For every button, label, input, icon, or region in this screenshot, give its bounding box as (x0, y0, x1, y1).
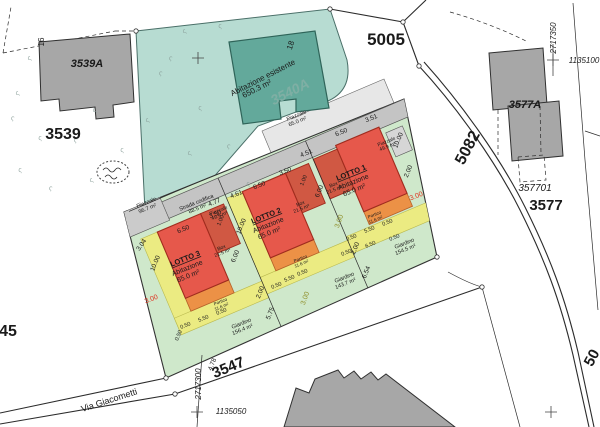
grass-symbol: ς (18, 167, 22, 174)
building-3577a-label: 3577A (509, 99, 541, 111)
boundary-vertex-node (435, 255, 439, 259)
boundary-vertex-node (134, 29, 138, 33)
grass-symbol: ς (48, 185, 54, 193)
building-3539a-label: 3539A (71, 58, 103, 70)
grass-symbol: ς (89, 177, 95, 185)
coord-2717350: 2717350 (549, 22, 558, 55)
boundary-branch (585, 131, 600, 136)
grass-symbol: ς (10, 115, 16, 123)
parcel-3577: 3577 (529, 197, 562, 214)
boundary-vertex-node (401, 20, 405, 24)
grass-symbol: ς (120, 147, 124, 154)
parcel-357701: 357701 (518, 183, 551, 194)
parcel-45: 45 (0, 323, 17, 340)
cadastral-site-plan: ςςςςςςςςςςςςςςςςςςς 500535393539A453547V… (0, 0, 600, 427)
boundary-vertex-node (480, 285, 484, 289)
boundary-vertex-node (417, 64, 421, 68)
road-50-partial: 50 (581, 347, 600, 370)
boundary-3577-east (573, 3, 598, 310)
existing-building (229, 31, 329, 124)
coord-1135100: 1135100 (569, 56, 600, 65)
hedge-symbol-waves (103, 168, 121, 179)
survey-cross (545, 406, 557, 418)
coord-2717300: 2717300 (194, 368, 203, 401)
grass-symbol: ς (27, 55, 33, 63)
parcel-3539: 3539 (45, 126, 81, 143)
boundary-dashed-curve (450, 12, 526, 41)
coord-1135050: 1135050 (216, 407, 247, 416)
road-5082-edge (419, 66, 589, 427)
site-plan-canvas: ςςςςςςςςςςςςςςςςςςς 500535393539A453547V… (0, 0, 600, 427)
boundary-vertex-node (164, 376, 168, 380)
boundary-3539-dashed (3, 7, 11, 53)
house-number-16: 16 (37, 37, 46, 46)
road-3547: 3547 (210, 354, 247, 382)
boundary-vertex-node (328, 7, 332, 11)
grass-symbol: ς (15, 90, 21, 98)
parcel-5005: 5005 (367, 30, 405, 49)
grass-symbol: ς (38, 135, 42, 142)
road-5082: 5082 (452, 128, 484, 167)
building-south (284, 370, 455, 427)
boundary-vertex-node (173, 392, 177, 396)
building-3539a (39, 34, 134, 119)
survey-cross (191, 406, 203, 418)
survey-cross (547, 54, 559, 66)
